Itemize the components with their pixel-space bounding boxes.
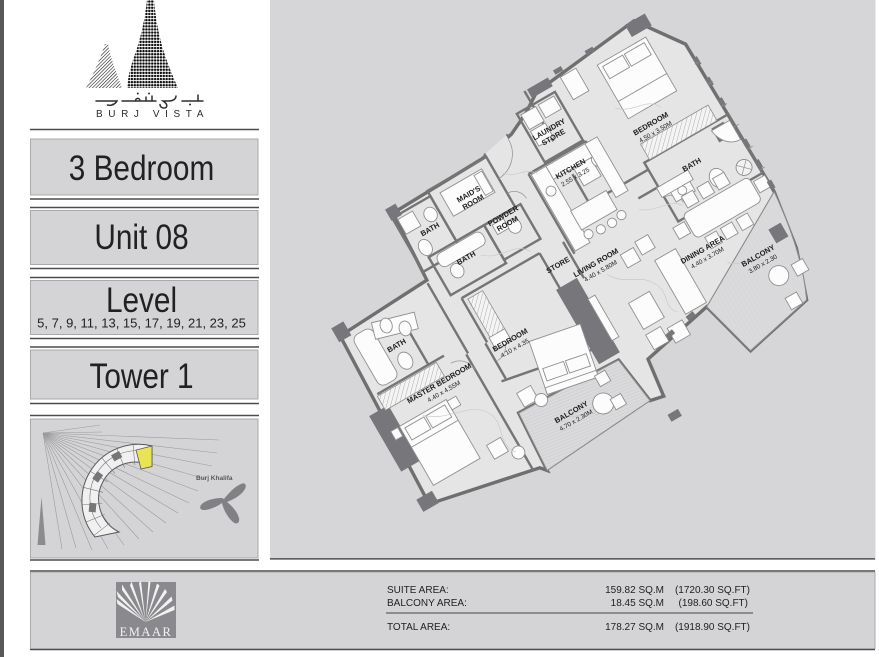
svg-text:EMAAR: EMAAR bbox=[120, 625, 173, 639]
svg-text:BALCONY AREA:: BALCONY AREA: bbox=[387, 598, 467, 609]
svg-text:(1720.30 SQ.FT): (1720.30 SQ.FT) bbox=[675, 585, 750, 596]
svg-text:Tower 1: Tower 1 bbox=[89, 357, 193, 396]
svg-text:Unit 08: Unit 08 bbox=[94, 218, 188, 257]
svg-text:SUITE AREA:: SUITE AREA: bbox=[387, 585, 449, 596]
svg-text:3 Bedroom: 3 Bedroom bbox=[69, 149, 214, 188]
svg-text:TOTAL AREA:: TOTAL AREA: bbox=[387, 622, 450, 633]
svg-text:178.27 SQ.M: 178.27 SQ.M bbox=[605, 622, 664, 633]
svg-text:5, 7, 9, 11, 13, 15, 17, 19, 2: 5, 7, 9, 11, 13, 15, 17, 19, 21, 23, 25 bbox=[37, 316, 246, 331]
svg-text:BURJ VISTA: BURJ VISTA bbox=[96, 109, 209, 120]
svg-text:18.45 SQ.M: 18.45 SQ.M bbox=[611, 598, 664, 609]
svg-text:(1918.90 SQ.FT): (1918.90 SQ.FT) bbox=[675, 622, 750, 633]
svg-text:159.82 SQ.M: 159.82 SQ.M bbox=[605, 585, 664, 596]
svg-text:Burj Khalifa: Burj Khalifa bbox=[196, 475, 233, 482]
svg-text:Level: Level bbox=[106, 281, 177, 320]
svg-text:(198.60 SQ.FT): (198.60 SQ.FT) bbox=[679, 598, 748, 609]
